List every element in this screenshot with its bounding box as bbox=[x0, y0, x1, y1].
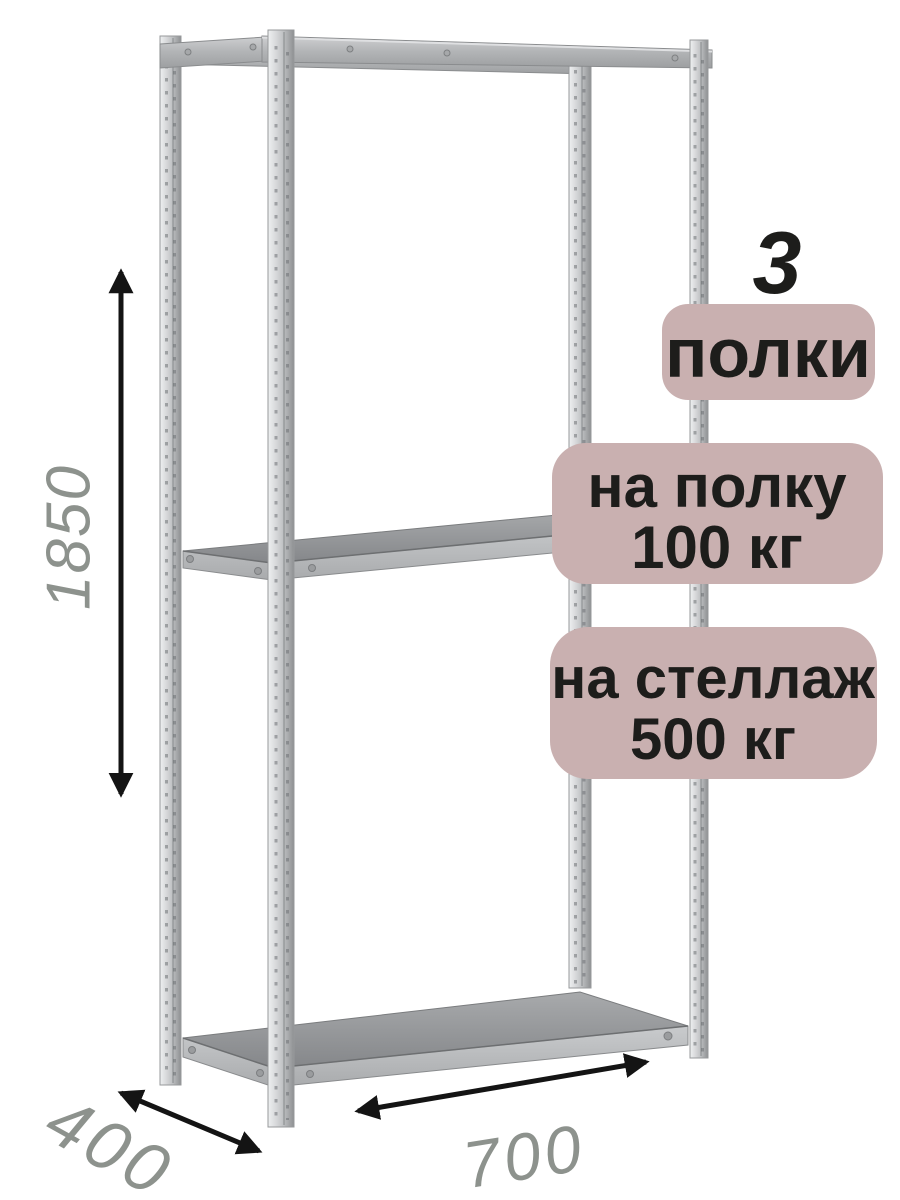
bolt bbox=[444, 50, 450, 56]
rack-load-line2: 500 кг bbox=[630, 707, 796, 772]
shelf-load-badge: на полку 100 кг bbox=[552, 443, 883, 584]
bolt bbox=[250, 44, 256, 50]
bolt bbox=[309, 565, 316, 572]
depth-dimension-label: 400 bbox=[33, 1080, 186, 1200]
annotation-badges: 3 полки на полку 100 кг на стеллаж 500 к… bbox=[550, 213, 883, 779]
post-body bbox=[160, 36, 181, 1085]
shelf-load-line2: 100 кг bbox=[631, 514, 803, 581]
post-back-left bbox=[160, 36, 181, 1085]
rack-load-line1: на стеллаж bbox=[551, 646, 875, 711]
post-front-left bbox=[268, 30, 294, 1127]
bolt bbox=[257, 1070, 264, 1077]
bolt bbox=[189, 1047, 196, 1054]
shelf-count-badge: полки bbox=[662, 304, 875, 400]
shelf-count-number: 3 bbox=[753, 213, 802, 312]
bolt bbox=[187, 556, 194, 563]
bolt bbox=[307, 1071, 314, 1078]
bolt bbox=[347, 46, 353, 52]
shelf-count-label: полки bbox=[665, 314, 871, 392]
bolt bbox=[255, 568, 262, 575]
product-image: 1850 400 700 3 полки на полку 100 кг на … bbox=[0, 0, 900, 1200]
rack-load-badge: на стеллаж 500 кг bbox=[550, 627, 877, 779]
shelving-rack-diagram: 1850 400 700 3 полки на полку 100 кг на … bbox=[0, 0, 900, 1200]
shelf-load-line1: на полку bbox=[587, 453, 847, 520]
post-body bbox=[268, 30, 294, 1127]
top-front-beam bbox=[262, 36, 712, 68]
bolt bbox=[672, 55, 678, 61]
bolt bbox=[664, 1032, 672, 1040]
width-dimension-label: 700 bbox=[458, 1110, 590, 1200]
height-dimension-label: 1850 bbox=[35, 464, 104, 610]
bolt bbox=[185, 49, 191, 55]
bottom-shelf bbox=[183, 992, 688, 1087]
